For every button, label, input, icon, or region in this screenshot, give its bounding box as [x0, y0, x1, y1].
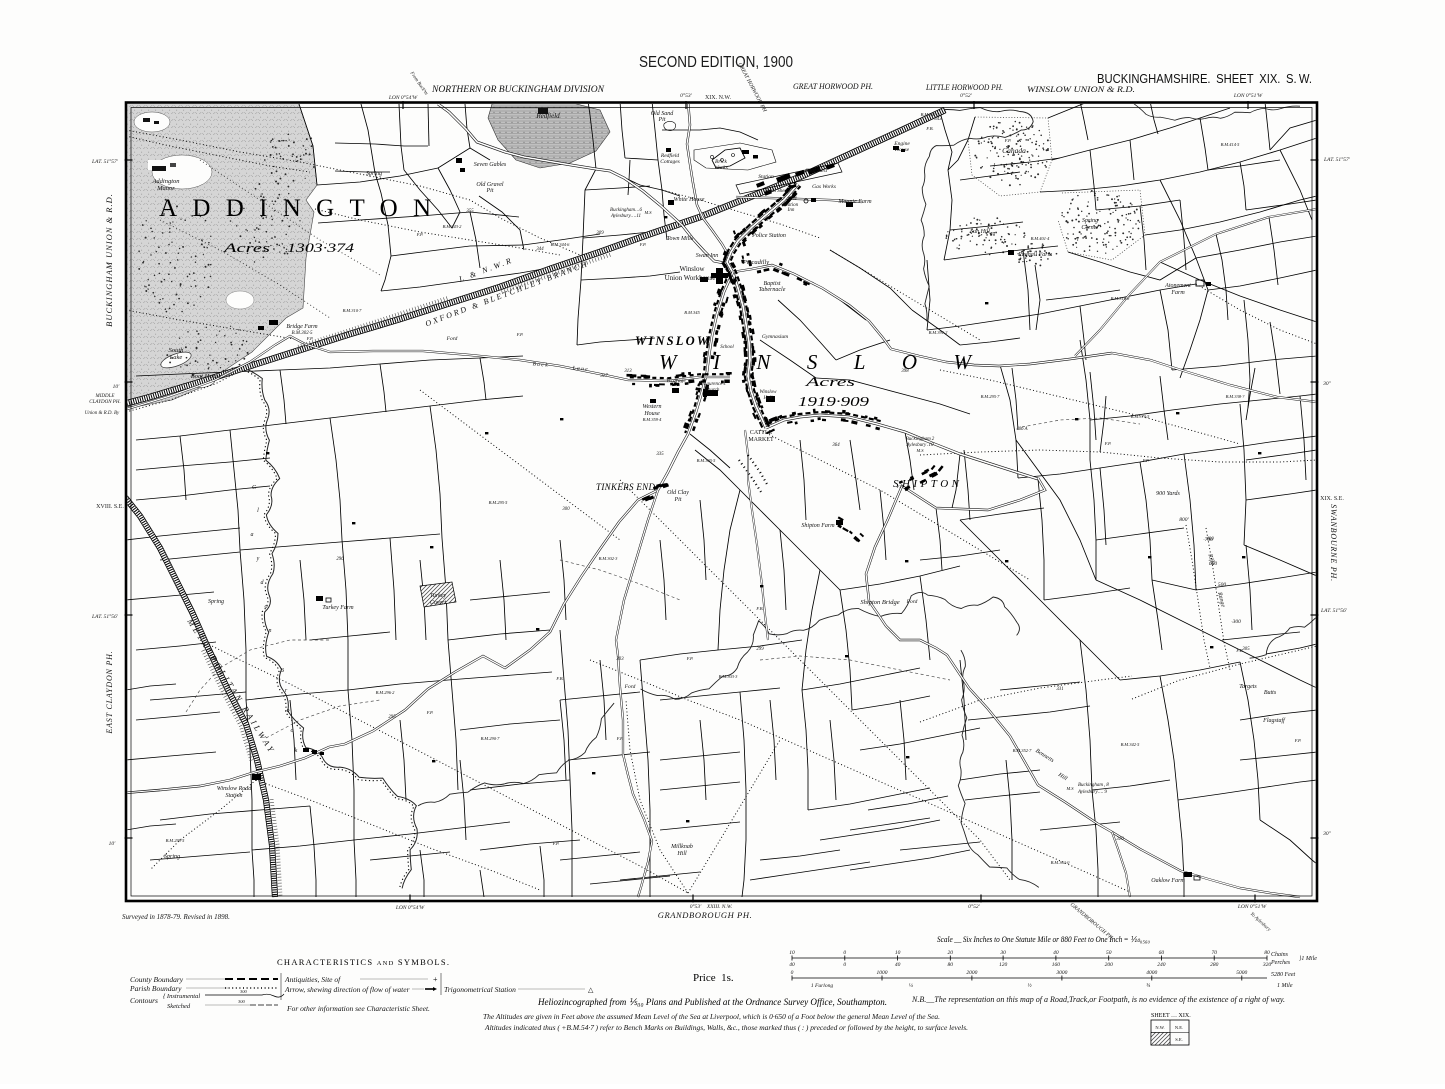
svg-text:Station: Station	[758, 174, 774, 180]
svg-text:F.P.: F.P.	[426, 710, 434, 715]
svg-text:309: 309	[596, 231, 604, 236]
svg-text:120: 120	[999, 962, 1008, 968]
svg-text:299: 299	[756, 647, 764, 652]
svg-text:B.M.414·5: B.M.414·5	[1221, 142, 1241, 147]
svg-text:SHEET … XIX.: SHEET … XIX.	[1151, 1013, 1191, 1019]
svg-text:Addington: Addington	[151, 178, 179, 185]
svg-text:B.M.361·0: B.M.361·0	[1051, 860, 1071, 865]
svg-text:WINSLOW: WINSLOW	[635, 334, 709, 348]
svg-text:Trigonometrical Station: Trigonometrical Station	[444, 985, 516, 994]
svg-text:Arrow, shewing direction of fl: Arrow, shewing direction of flow of wate…	[284, 985, 410, 994]
svg-text:EAST CLAYDON PH.: EAST CLAYDON PH.	[105, 650, 114, 734]
svg-text:St Laurence’s: St Laurence’s	[699, 382, 726, 387]
svg-text:313: 313	[624, 369, 632, 374]
svg-text:LITTLE HORWOOD PH.: LITTLE HORWOOD PH.	[925, 83, 1003, 92]
svg-text:Pit: Pit	[658, 117, 666, 123]
svg-text:For other information see Char: For other information see Characteristic…	[286, 1004, 430, 1013]
svg-text:Surveyed in 1878-79. Revised i: Surveyed in 1878-79. Revised in 1898.	[122, 913, 230, 921]
svg-text:160: 160	[1052, 962, 1061, 968]
svg-text:B.M.338·?: B.M.338·?	[1226, 394, 1246, 399]
svg-text:Hill: Hill	[676, 851, 687, 857]
svg-text:300: 300	[238, 999, 246, 1004]
svg-text:Rudhall Farm: Rudhall Farm	[1017, 252, 1052, 258]
svg-text:Acres: Acres	[804, 374, 855, 389]
svg-text:LON 0°51′W: LON 0°51′W	[1237, 903, 1267, 910]
svg-text:Old Clay: Old Clay	[667, 490, 689, 496]
svg-text:Tabernacle: Tabernacle	[759, 287, 786, 293]
svg-text:F.P.: F.P.	[1104, 441, 1112, 446]
svg-text:30″: 30″	[1322, 381, 1332, 387]
svg-text:F.P.: F.P.	[552, 841, 560, 846]
svg-text:Altitudes indicated thus ( +B.: Altitudes indicated thus ( +B.M.54·7 ) r…	[484, 1023, 968, 1032]
svg-text:0: 0	[791, 970, 794, 976]
svg-text:406 A: 406 A	[1016, 427, 1027, 432]
svg-text:Magpie Farm: Magpie Farm	[837, 199, 872, 205]
svg-text:Western: Western	[642, 404, 661, 410]
svg-text:Chains: Chains	[1271, 952, 1289, 958]
svg-text:XIX. N.W.: XIX. N.W.	[705, 95, 732, 101]
svg-text:331: 331	[1056, 687, 1063, 692]
svg-text:·300: ·300	[1231, 619, 1241, 625]
svg-text:B.M.310·7: B.M.310·7	[343, 308, 363, 313]
svg-text:South: South	[169, 347, 184, 354]
svg-text:o: o	[291, 728, 294, 734]
svg-text:Heliozincographed from ⅕₀₀ Pla: Heliozincographed from ⅕₀₀ Plans and Pub…	[537, 997, 887, 1007]
svg-text:Farm: Farm	[1170, 290, 1185, 296]
svg-text:B.M.343·2: B.M.343·2	[443, 224, 463, 229]
svg-text:B.M.391·2: B.M.391·2	[929, 330, 949, 335]
svg-text:MIDDLE: MIDDLE	[95, 394, 115, 399]
svg-text:F.P.: F.P.	[516, 332, 524, 337]
svg-text:Winslow: Winslow	[760, 390, 778, 395]
svg-text:Gas Works: Gas Works	[812, 184, 836, 190]
svg-text:0°53′ XXIII. N.W.: 0°53′ XXIII. N.W.	[690, 903, 733, 910]
svg-text:300: 300	[240, 989, 248, 994]
svg-text:B.M.302·3: B.M.302·3	[599, 556, 619, 561]
svg-text:SECOND EDITION, 1900: SECOND EDITION, 1900	[639, 54, 793, 71]
svg-text:Spring: Spring	[164, 854, 180, 860]
svg-text:303: 303	[616, 657, 624, 662]
svg-text:TINKERS END: TINKERS END	[596, 482, 656, 492]
svg-text:80: 80	[1264, 950, 1270, 956]
svg-text:Cottages: Cottages	[660, 159, 680, 165]
svg-text:o: o	[265, 604, 268, 610]
svg-text:Ford: Ford	[906, 599, 918, 605]
svg-text:Ford: Ford	[624, 684, 636, 690]
svg-text:F.B.: F.B.	[755, 606, 763, 611]
svg-text:Shipton Bridge: Shipton Bridge	[860, 599, 899, 606]
svg-text:Gymnasium: Gymnasium	[762, 334, 788, 340]
svg-text:Spring: Spring	[208, 599, 224, 605]
svg-text:Union Workhouse: Union Workhouse	[665, 274, 716, 282]
svg-text:10: 10	[895, 950, 901, 956]
svg-text:10: 10	[789, 950, 795, 956]
svg-text:Inn: Inn	[787, 208, 795, 213]
svg-text:800′: 800′	[1179, 517, 1189, 523]
svg-text:ADDINGTON: ADDINGTON	[159, 195, 431, 222]
svg-text:LON 0°51′W: LON 0°51′W	[1233, 92, 1263, 99]
svg-text:40: 40	[789, 961, 795, 968]
svg-text:Buckingham…6: Buckingham…6	[610, 208, 642, 213]
svg-text:+: +	[433, 975, 438, 984]
svg-text:Buckingham , 8: Buckingham , 8	[1078, 783, 1109, 788]
svg-text:0: 0	[843, 950, 846, 956]
svg-text:B.M.352·7: B.M.352·7	[1013, 748, 1033, 753]
svg-text:1 Furlong: 1 Furlong	[811, 983, 833, 989]
svg-text:½: ½	[1027, 982, 1031, 989]
svg-text:900 Yards: 900 Yards	[1156, 491, 1180, 497]
svg-text:317: 317	[600, 374, 608, 379]
svg-text:White House: White House	[674, 197, 705, 203]
svg-text:344: 344	[536, 247, 544, 252]
svg-text:30: 30	[999, 950, 1006, 956]
svg-text:BUCKINGHAM UNION & R.D.: BUCKINGHAM UNION & R.D.	[104, 193, 114, 327]
svg-text:F.B.: F.B.	[555, 676, 563, 681]
svg-text:F.P.: F.P.	[686, 656, 694, 661]
svg-text:GRANDBOROUGH PH.: GRANDBOROUGH PH.	[658, 910, 753, 920]
svg-text:F.P.: F.P.	[1294, 738, 1302, 743]
svg-text:B: B	[280, 668, 284, 674]
svg-text:Millknab: Millknab	[670, 844, 693, 850]
svg-text:5000: 5000	[1236, 970, 1247, 976]
svg-text:Redfield: Redfield	[535, 112, 560, 120]
svg-text:Hall: Hall	[763, 396, 774, 401]
svg-text:Sketched: Sketched	[167, 1003, 191, 1010]
svg-text:364: 364	[832, 443, 840, 448]
svg-text:10′: 10′	[109, 841, 117, 847]
svg-text:N.B.__The representation on th: N.B.__The representation on this map of …	[911, 995, 1285, 1004]
svg-text:F.B.: F.B.	[1235, 648, 1243, 653]
svg-text:LAT. 51°56′: LAT. 51°56′	[1320, 607, 1348, 614]
svg-text:Station: Station	[225, 793, 242, 799]
svg-text:N.W.: N.W.	[1155, 1025, 1164, 1030]
svg-text:B.M.344·6: B.M.344·6	[551, 242, 571, 247]
svg-text:1919·909: 1919·909	[798, 395, 869, 410]
svg-text:Vicarage: Vicarage	[666, 378, 686, 384]
svg-text:398: 398	[901, 369, 909, 374]
svg-text:Shipton Farm: Shipton Farm	[801, 523, 835, 529]
svg-text:Oaklow Farm: Oaklow Farm	[1151, 878, 1185, 884]
svg-text:240: 240	[1157, 961, 1166, 968]
svg-text:F.P.: F.P.	[416, 232, 424, 237]
svg-text:△: △	[588, 986, 594, 994]
svg-text:Ford: Ford	[446, 336, 458, 342]
svg-text:B.M.401·4: B.M.401·4	[1031, 236, 1051, 241]
svg-text:40: 40	[895, 961, 901, 968]
svg-text:B.M.299·5: B.M.299·5	[166, 838, 186, 843]
svg-text:Corner: Corner	[1081, 225, 1099, 231]
svg-text:B.M.303·3: B.M.303·3	[719, 674, 739, 679]
svg-text:Covert: Covert	[430, 600, 447, 606]
svg-text:S.E.: S.E.	[1175, 1037, 1183, 1042]
svg-text:M.S: M.S	[1065, 786, 1074, 791]
svg-text:400: 400	[1206, 537, 1214, 542]
svg-text:Contours: Contours	[130, 996, 158, 1005]
svg-text:The Altitudes are given in Fee: The Altitudes are given in Feet above th…	[483, 1012, 940, 1021]
svg-text:1000: 1000	[877, 970, 888, 976]
svg-text:o: o	[287, 708, 290, 714]
svg-text:50: 50	[1106, 950, 1112, 956]
svg-text:XVIII. S.E.: XVIII. S.E.	[96, 504, 124, 510]
svg-text:Canada: Canada	[1002, 146, 1026, 155]
svg-text:354: 354	[789, 197, 797, 202]
svg-text:Winslow Road: Winslow Road	[217, 786, 253, 792]
svg-text:335: 335	[656, 452, 664, 457]
svg-text:Lake: Lake	[169, 354, 183, 361]
svg-text:SWANBOURNE PH.: SWANBOURNE PH.	[1329, 504, 1338, 582]
svg-text:n: n	[269, 628, 272, 634]
svg-text:320: 320	[1262, 962, 1272, 968]
svg-text:343: 343	[934, 117, 942, 122]
svg-text:Church: Church	[705, 388, 720, 393]
svg-text:Spring: Spring	[1082, 218, 1098, 224]
svg-text:Flagstaff: Flagstaff	[1262, 717, 1286, 724]
svg-text:Bridge Farm: Bridge Farm	[286, 324, 318, 330]
svg-text:2000: 2000	[966, 970, 977, 976]
svg-text:B.M.370·5: B.M.370·5	[1131, 414, 1151, 419]
svg-text:Piccadilly: Piccadilly	[742, 259, 769, 266]
svg-text:MARKET: MARKET	[748, 437, 774, 443]
svg-text:F.P.: F.P.	[639, 242, 647, 247]
svg-text:F.P.: F.P.	[1004, 138, 1012, 143]
svg-text:Turkey Farm: Turkey Farm	[322, 605, 354, 611]
svg-text:200: 200	[1105, 962, 1114, 968]
svg-text:Targets: Targets	[1239, 684, 1257, 690]
svg-text:Works: Works	[714, 165, 728, 171]
svg-text:5280 Feet: 5280 Feet	[1271, 972, 1295, 978]
svg-text:500: 500	[1218, 582, 1227, 588]
svg-text:0°52′: 0°52′	[968, 903, 980, 910]
svg-text:30″: 30″	[1322, 831, 1332, 837]
svg-text:B.M.295·5: B.M.295·5	[489, 500, 509, 505]
svg-text:B.M.295·7: B.M.295·7	[981, 394, 1001, 399]
svg-text:CATTLE: CATTLE	[750, 430, 773, 436]
svg-text:House: House	[894, 147, 910, 153]
svg-text:Pit: Pit	[674, 497, 682, 503]
svg-text:B.M.359·4: B.M.359·4	[643, 417, 663, 422]
svg-text:355: 355	[466, 209, 474, 214]
svg-text:Acres: Acres	[222, 241, 270, 255]
svg-text:295: 295	[388, 715, 396, 720]
svg-text:Town Mills: Town Mills	[667, 236, 694, 242]
svg-text:Parish Boundary: Parish Boundary	[129, 984, 182, 993]
svg-text:F.P.: F.P.	[616, 736, 624, 741]
svg-text:XIX. S.E.: XIX. S.E.	[1320, 496, 1344, 502]
svg-text:y: y	[256, 556, 260, 562]
svg-text:Turkey: Turkey	[430, 593, 447, 599]
svg-text:Swan Inn: Swan Inn	[696, 253, 719, 259]
svg-text:F.B.: F.B.	[925, 126, 933, 131]
svg-text:0°53′: 0°53′	[680, 92, 692, 99]
svg-text:1 Mile: 1 Mile	[1277, 983, 1293, 989]
svg-text:¾: ¾	[1146, 983, 1150, 989]
svg-text:N.E.: N.E.	[1175, 1025, 1183, 1030]
svg-text:0°52′: 0°52′	[960, 92, 972, 99]
svg-text:Seven Gables: Seven Gables	[474, 162, 507, 168]
svg-text:Scale __ Six Inches to One Sta: Scale __ Six Inches to One Statute Mile …	[937, 935, 1150, 944]
svg-text:LON 0°54′W: LON 0°54′W	[388, 94, 418, 101]
svg-text:Boat House: Boat House	[191, 373, 222, 380]
svg-text:Manor: Manor	[156, 185, 175, 192]
svg-text:NORTHERN OR BUCKINGHAM DIVISIO: NORTHERN OR BUCKINGHAM DIVISION	[431, 84, 605, 94]
svg-text:B.M.345: B.M.345	[684, 310, 700, 315]
svg-text:Redfield: Redfield	[660, 152, 680, 159]
svg-text:Butts: Butts	[1264, 690, 1277, 696]
svg-text:F.P.: F.P.	[306, 336, 314, 341]
svg-text:Goods Shed: Goods Shed	[763, 189, 788, 194]
svg-text:80: 80	[948, 962, 954, 968]
svg-text:F.P.: F.P.	[1142, 458, 1150, 463]
svg-text:Aylesbury…. 9: Aylesbury…. 9	[1077, 790, 1107, 795]
svg-text:70: 70	[1211, 950, 1217, 956]
svg-text:M.S: M.S	[643, 210, 652, 215]
svg-text:Buckingham 2: Buckingham 2	[906, 437, 935, 442]
svg-text:Aylesbury….11: Aylesbury….11	[610, 214, 641, 219]
svg-text:B.M.305·5: B.M.305·5	[697, 458, 717, 463]
svg-text:B.M.342·5: B.M.342·5	[1121, 742, 1141, 747]
svg-text:4000: 4000	[1146, 969, 1157, 976]
svg-text:CLAYDON PH.: CLAYDON PH.	[89, 400, 120, 405]
svg-text:F.P.: F.P.	[896, 484, 904, 489]
svg-text:CHARACTERISTICS AND SYMBOLS.: CHARACTERISTICS AND SYMBOLS.	[277, 957, 449, 967]
svg-text:310: 310	[1116, 837, 1124, 842]
svg-text:Police Station: Police Station	[751, 233, 786, 239]
svg-text:WINSLOW UNION & R.D.: WINSLOW UNION & R.D.	[1027, 84, 1135, 94]
svg-text:Atonement: Atonement	[1164, 283, 1191, 289]
svg-text:Pit: Pit	[486, 188, 494, 194]
svg-text:School: School	[720, 345, 734, 350]
svg-text:a: a	[251, 532, 254, 538]
svg-text:Spring: Spring	[366, 171, 382, 177]
svg-text:40: 40	[1053, 949, 1059, 956]
svg-text:3000: 3000	[1055, 970, 1067, 976]
svg-text:LAT. 51°56′: LAT. 51°56′	[91, 613, 119, 620]
svg-text:Winslow: Winslow	[680, 265, 706, 273]
svg-text:GREAT HORWOOD PH.: GREAT HORWOOD PH.	[793, 82, 873, 91]
svg-text:}1 Mile: }1 Mile	[1299, 956, 1317, 962]
svg-text:LAT. 51°57′: LAT. 51°57′	[1323, 156, 1351, 163]
svg-text:20: 20	[948, 950, 954, 956]
svg-text:LON 0°54′W: LON 0°54′W	[395, 904, 425, 911]
svg-text:1303·374: 1303·374	[287, 240, 355, 255]
svg-text:280: 280	[1210, 962, 1219, 968]
svg-text:County Boundary: County Boundary	[130, 975, 184, 984]
svg-text:B.M.310·8: B.M.310·8	[1111, 296, 1131, 301]
svg-text:Union & R.D. By: Union & R.D. By	[85, 411, 120, 416]
svg-text:Antiquities, Site of: Antiquities, Site of	[284, 975, 341, 984]
svg-text:Sun Hill: Sun Hill	[970, 229, 990, 235]
svg-text:Coal Yard: Coal Yard	[805, 168, 827, 174]
svg-text:B.M.290·7: B.M.290·7	[481, 736, 501, 741]
svg-text:M.S: M.S	[915, 448, 924, 453]
svg-text:¼: ¼	[909, 983, 913, 989]
svg-text:B.M.296·2: B.M.296·2	[376, 690, 396, 695]
svg-text:300: 300	[562, 507, 570, 512]
svg-text:{ Instrumental: { Instrumental	[163, 993, 200, 1000]
svg-text:Price 1s.: Price 1s.	[693, 972, 734, 984]
svg-text:Perches: Perches	[1270, 960, 1291, 966]
svg-text:60: 60	[1159, 950, 1165, 956]
svg-text:10′: 10′	[113, 384, 121, 390]
svg-text:k: k	[295, 748, 298, 754]
svg-text:0: 0	[843, 962, 846, 968]
svg-text:LAT. 51°57′: LAT. 51°57′	[91, 158, 119, 165]
svg-text:296: 296	[336, 557, 344, 562]
